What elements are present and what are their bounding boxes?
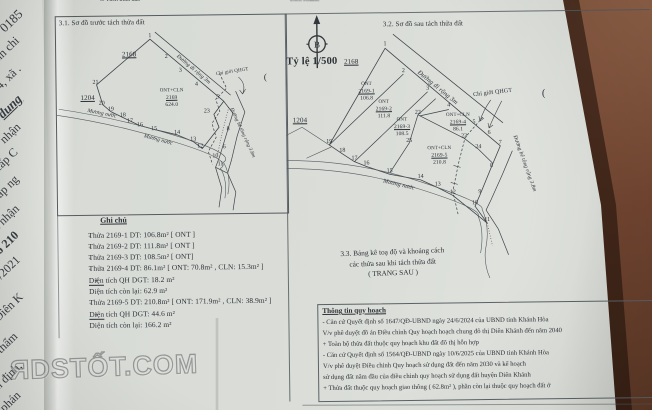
- vertex-number: 13: [435, 182, 441, 188]
- vertex-number: 3: [179, 68, 182, 74]
- coordinate-table-note: 3.3. Bảng kê toạ độ và khoảng cáchcác th…: [314, 244, 471, 281]
- diagram-label: 2168: [344, 58, 359, 66]
- planning-line: sử dụng đất năm đầu của điều chỉnh quy h…: [323, 372, 531, 382]
- planning-list: - Căn cứ Quyết định số 1647/QĐ-UBND ngày…: [322, 303, 652, 399]
- diagram-label: 2169: [166, 95, 177, 101]
- planning-section: Thông tin quy hoạch - Căn cứ Quyết định …: [322, 303, 652, 399]
- vertex-number: 4: [195, 82, 198, 88]
- left-border: [57, 214, 60, 338]
- vertex-number: 9: [478, 189, 481, 195]
- vertex-number: 6: [223, 144, 226, 150]
- planning-line: V/v phê duyệt Điều chỉnh Quy hoạch sử dụ…: [323, 361, 526, 370]
- diagram-label: ONT: [378, 100, 389, 105]
- diagram-label: 2169-1: [358, 88, 374, 94]
- vertex-number: 11: [484, 217, 490, 223]
- diagram-label: 106.8: [360, 95, 373, 101]
- diagram-label: 1204: [80, 94, 95, 102]
- bottom-border: [302, 404, 652, 406]
- diagram-before-split: 21681204ONT+CLN2169624.0Đường đi rộng 3m…: [55, 14, 287, 215]
- vertex-number: 16: [363, 160, 369, 166]
- diagram-label: 624.0: [165, 102, 178, 108]
- diagram-label: ONT: [361, 82, 372, 87]
- vertex-number: 18: [339, 148, 345, 154]
- vertex-number: 11: [218, 161, 224, 167]
- planning-line: + Toàn bộ thửa đất thuộc quy hoạch khu đ…: [323, 339, 479, 348]
- vertex-number: 15: [387, 168, 393, 174]
- note-text: Thửa 2169-5 DT: 210.8m² [ ONT: 171.9m² ,…: [89, 296, 272, 307]
- diagram-label: 2169-3: [394, 124, 410, 130]
- note-text: Diện tích QH DGT: 44.6 m²: [89, 309, 175, 319]
- vertex-number: 2: [165, 54, 168, 60]
- note-text: Thửa 2169-3 DT: 108.5m² [ ONT]: [89, 252, 194, 262]
- vertex-number: 5: [472, 119, 475, 125]
- cutoff-header-left: 3. Tách thửa đất.: [100, 0, 140, 3]
- note-text: Diện tích còn lại: 166.2 m²: [89, 320, 171, 330]
- vertex-number: 25: [406, 138, 412, 144]
- diagram-label: 210.8: [433, 160, 446, 166]
- land-split-document-photo: 0185nh chi4, xã .dungnhậncấp Ccấp ngi nh…: [0, 0, 652, 410]
- note-text: Thửa 2169-2 DT: 111.8m² [ ONT ]: [88, 241, 194, 251]
- vertex-number: 14: [174, 130, 180, 136]
- notes-list: -Thửa 2169-1 DT: 106.8m² [ ONT ]-Thửa 21…: [88, 213, 319, 336]
- vertex-number: 23: [204, 108, 210, 114]
- vertex-number: 8: [227, 126, 230, 132]
- planning-line: - Căn cứ Quyết định số 1647/QĐ-UBND ngày…: [322, 316, 548, 326]
- diagram-label: ONT+CLN: [427, 146, 451, 151]
- diagram-label: 2169-5: [431, 153, 447, 159]
- diagram-label: 2168: [122, 50, 137, 58]
- diagram-label: 2169-4: [450, 119, 466, 125]
- vertex-number: 19: [326, 139, 332, 145]
- vertex-number: 3: [426, 86, 429, 92]
- vertex-number: 4: [447, 102, 450, 108]
- vertex-number: 6: [488, 130, 491, 136]
- planning-line: V/v phê duyệt đồ án Điều chỉnh Quy hoạch…: [323, 327, 562, 337]
- vertex-number: 2: [402, 68, 405, 74]
- vertex-number: 24: [475, 144, 481, 150]
- diagram-label: ONT: [397, 118, 408, 123]
- diagram-label: (: [264, 72, 267, 82]
- vertex-number: 19: [108, 107, 114, 113]
- vertex-number: 10: [212, 153, 218, 159]
- vertex-number: 17: [127, 118, 133, 124]
- vertex-number: 1: [148, 33, 151, 39]
- diagram-label: 86.1: [453, 126, 463, 132]
- document-content: 3.1. Sơ đồ trước tách thửa đất 3.2. Sơ đ…: [0, 0, 652, 410]
- vertex-number: 15: [151, 126, 157, 132]
- vertex-number: 16: [137, 122, 143, 128]
- diagram-label: ONT+CLN: [446, 113, 470, 118]
- vertex-number: 20: [99, 101, 105, 107]
- vertex-number: 22: [415, 110, 421, 116]
- diagram-label: 1204: [293, 116, 308, 124]
- planning-line: + Thửa đất thuộc quy hoạch giao thông ( …: [323, 382, 550, 392]
- diagram-label: ONT+CLN: [160, 88, 184, 93]
- vertex-number: 5: [216, 94, 219, 100]
- vertex-number: 21: [92, 80, 98, 86]
- vertex-number: 10: [472, 200, 478, 206]
- cutoff-header-right: Diên Khánh: [290, 0, 319, 3]
- vertex-number: 7: [499, 140, 502, 146]
- note-text: Thửa 2169-1 DT: 106.8m² [ ONT ]: [88, 230, 195, 240]
- diagram-label: 108.5: [396, 131, 409, 137]
- planning-line: - Căn cứ Quyết định số 1564/QĐ-UBND ngày…: [323, 349, 549, 359]
- diagram-label: 111.8: [378, 113, 391, 119]
- vertex-number: 14: [418, 174, 424, 180]
- vertex-number: 1: [384, 41, 387, 47]
- vertex-number: 8: [490, 163, 493, 169]
- watermark: ЯDSTỐT.COM: [10, 349, 199, 387]
- vertex-number: 12: [450, 189, 456, 195]
- notes-section: Ghi chú -Thửa 2169-1 DT: 106.8m² [ ONT ]…: [88, 213, 319, 336]
- diagram-before-lines: [55, 14, 287, 215]
- vertex-number: 23: [461, 133, 467, 139]
- note-text: Thửa 2169-4 DT: 86.1m² [ ONT: 70.8m² , C…: [89, 262, 264, 273]
- note-text: Diện tích QH DGT: 18.2 m²: [89, 275, 175, 285]
- vertex-number: 18: [120, 112, 126, 118]
- note-text: Diện tích còn lại: 62.9 m²: [89, 286, 167, 296]
- diagram-label: 2169-2: [376, 106, 392, 112]
- vertex-number: 12: [197, 143, 203, 149]
- vertex-number: 17: [351, 156, 357, 162]
- vertex-number: 13: [190, 137, 196, 143]
- diagram-label: (: [542, 88, 546, 99]
